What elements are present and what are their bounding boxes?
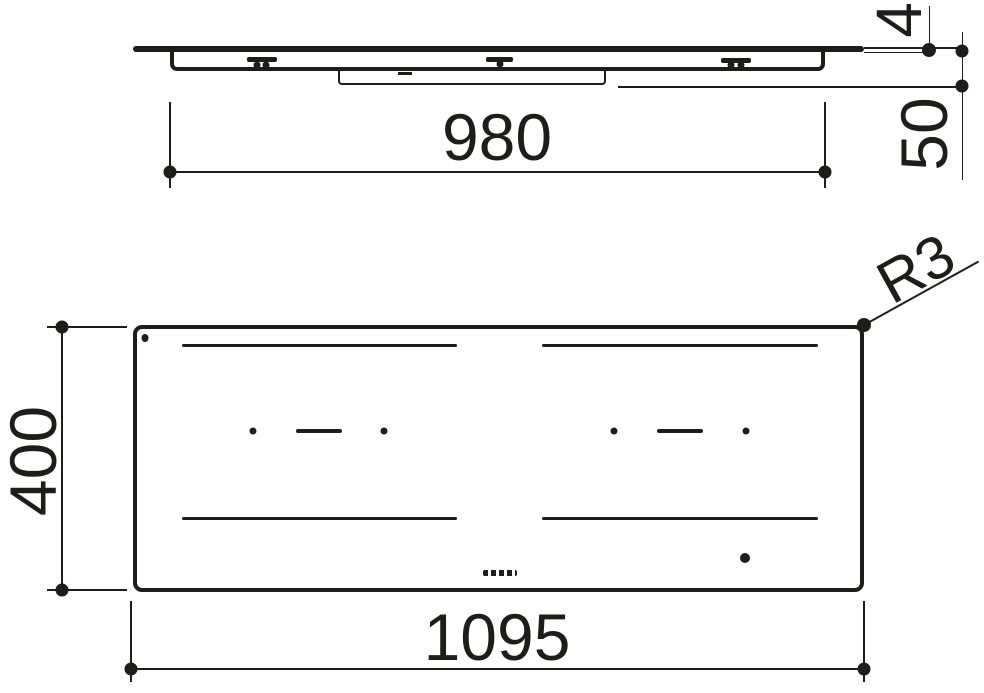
dimension-label-body-width: 980: [442, 104, 552, 170]
dimension-endpoint: [858, 663, 871, 676]
dimension-label-overall-width: 1095: [424, 604, 571, 670]
zone-center-dot: [250, 428, 257, 435]
zone-line-top-right: [542, 344, 818, 347]
dimension-endpoint: [164, 166, 177, 179]
technical-drawing-cooktop: 980 4 50: [0, 0, 984, 693]
dimension-endpoint: [922, 43, 936, 57]
mounting-clamp-screw: [728, 62, 735, 69]
dimension-endpoint: [125, 663, 138, 676]
zone-line-bottom-left: [182, 517, 457, 520]
side-view: 980 4 50: [0, 0, 984, 200]
zone-center-bar: [296, 429, 342, 433]
dimension-label-corner-radius: R3: [868, 224, 964, 314]
dimension-label-installation-depth: 50: [891, 97, 957, 170]
glass-outline: [133, 325, 864, 592]
plan-view: R3 400 1095: [0, 200, 984, 693]
sensor-dot: [740, 553, 750, 563]
mounting-clamp-screw: [254, 62, 261, 69]
zone-center-dot: [611, 428, 618, 435]
zone-center-dot: [743, 428, 750, 435]
dimension-endpoint: [819, 166, 832, 179]
dimension-label-overall-depth: 400: [0, 406, 66, 516]
mounting-clamp-screw: [263, 62, 270, 69]
extension-line-glass-top: [864, 47, 962, 49]
junction-box-seam: [398, 72, 412, 75]
mounting-clamp-screw: [738, 62, 745, 69]
zone-center-bar: [657, 429, 703, 433]
mounting-clamp-bar: [247, 57, 277, 62]
extension-line-depth-bottom: [618, 86, 962, 88]
corner-marking: [142, 334, 149, 342]
mounting-clamp-screw: [497, 61, 504, 68]
extension-line-glass-bottom: [864, 52, 930, 54]
junction-box-profile: [338, 70, 606, 85]
dimension-label-glass-thickness: 4: [867, 2, 931, 38]
zone-line-bottom-right: [542, 517, 818, 520]
dimension-endpoint: [56, 321, 69, 334]
zone-line-top-left: [182, 344, 457, 347]
control-panel-marking: [483, 570, 517, 576]
radius-leader-endpoint: [857, 318, 871, 332]
zone-center-dot: [381, 428, 388, 435]
mounting-clamp-bar: [721, 58, 751, 63]
dimension-endpoint: [56, 584, 69, 597]
dimension-endpoint: [956, 80, 969, 93]
dimension-endpoint: [956, 44, 969, 57]
